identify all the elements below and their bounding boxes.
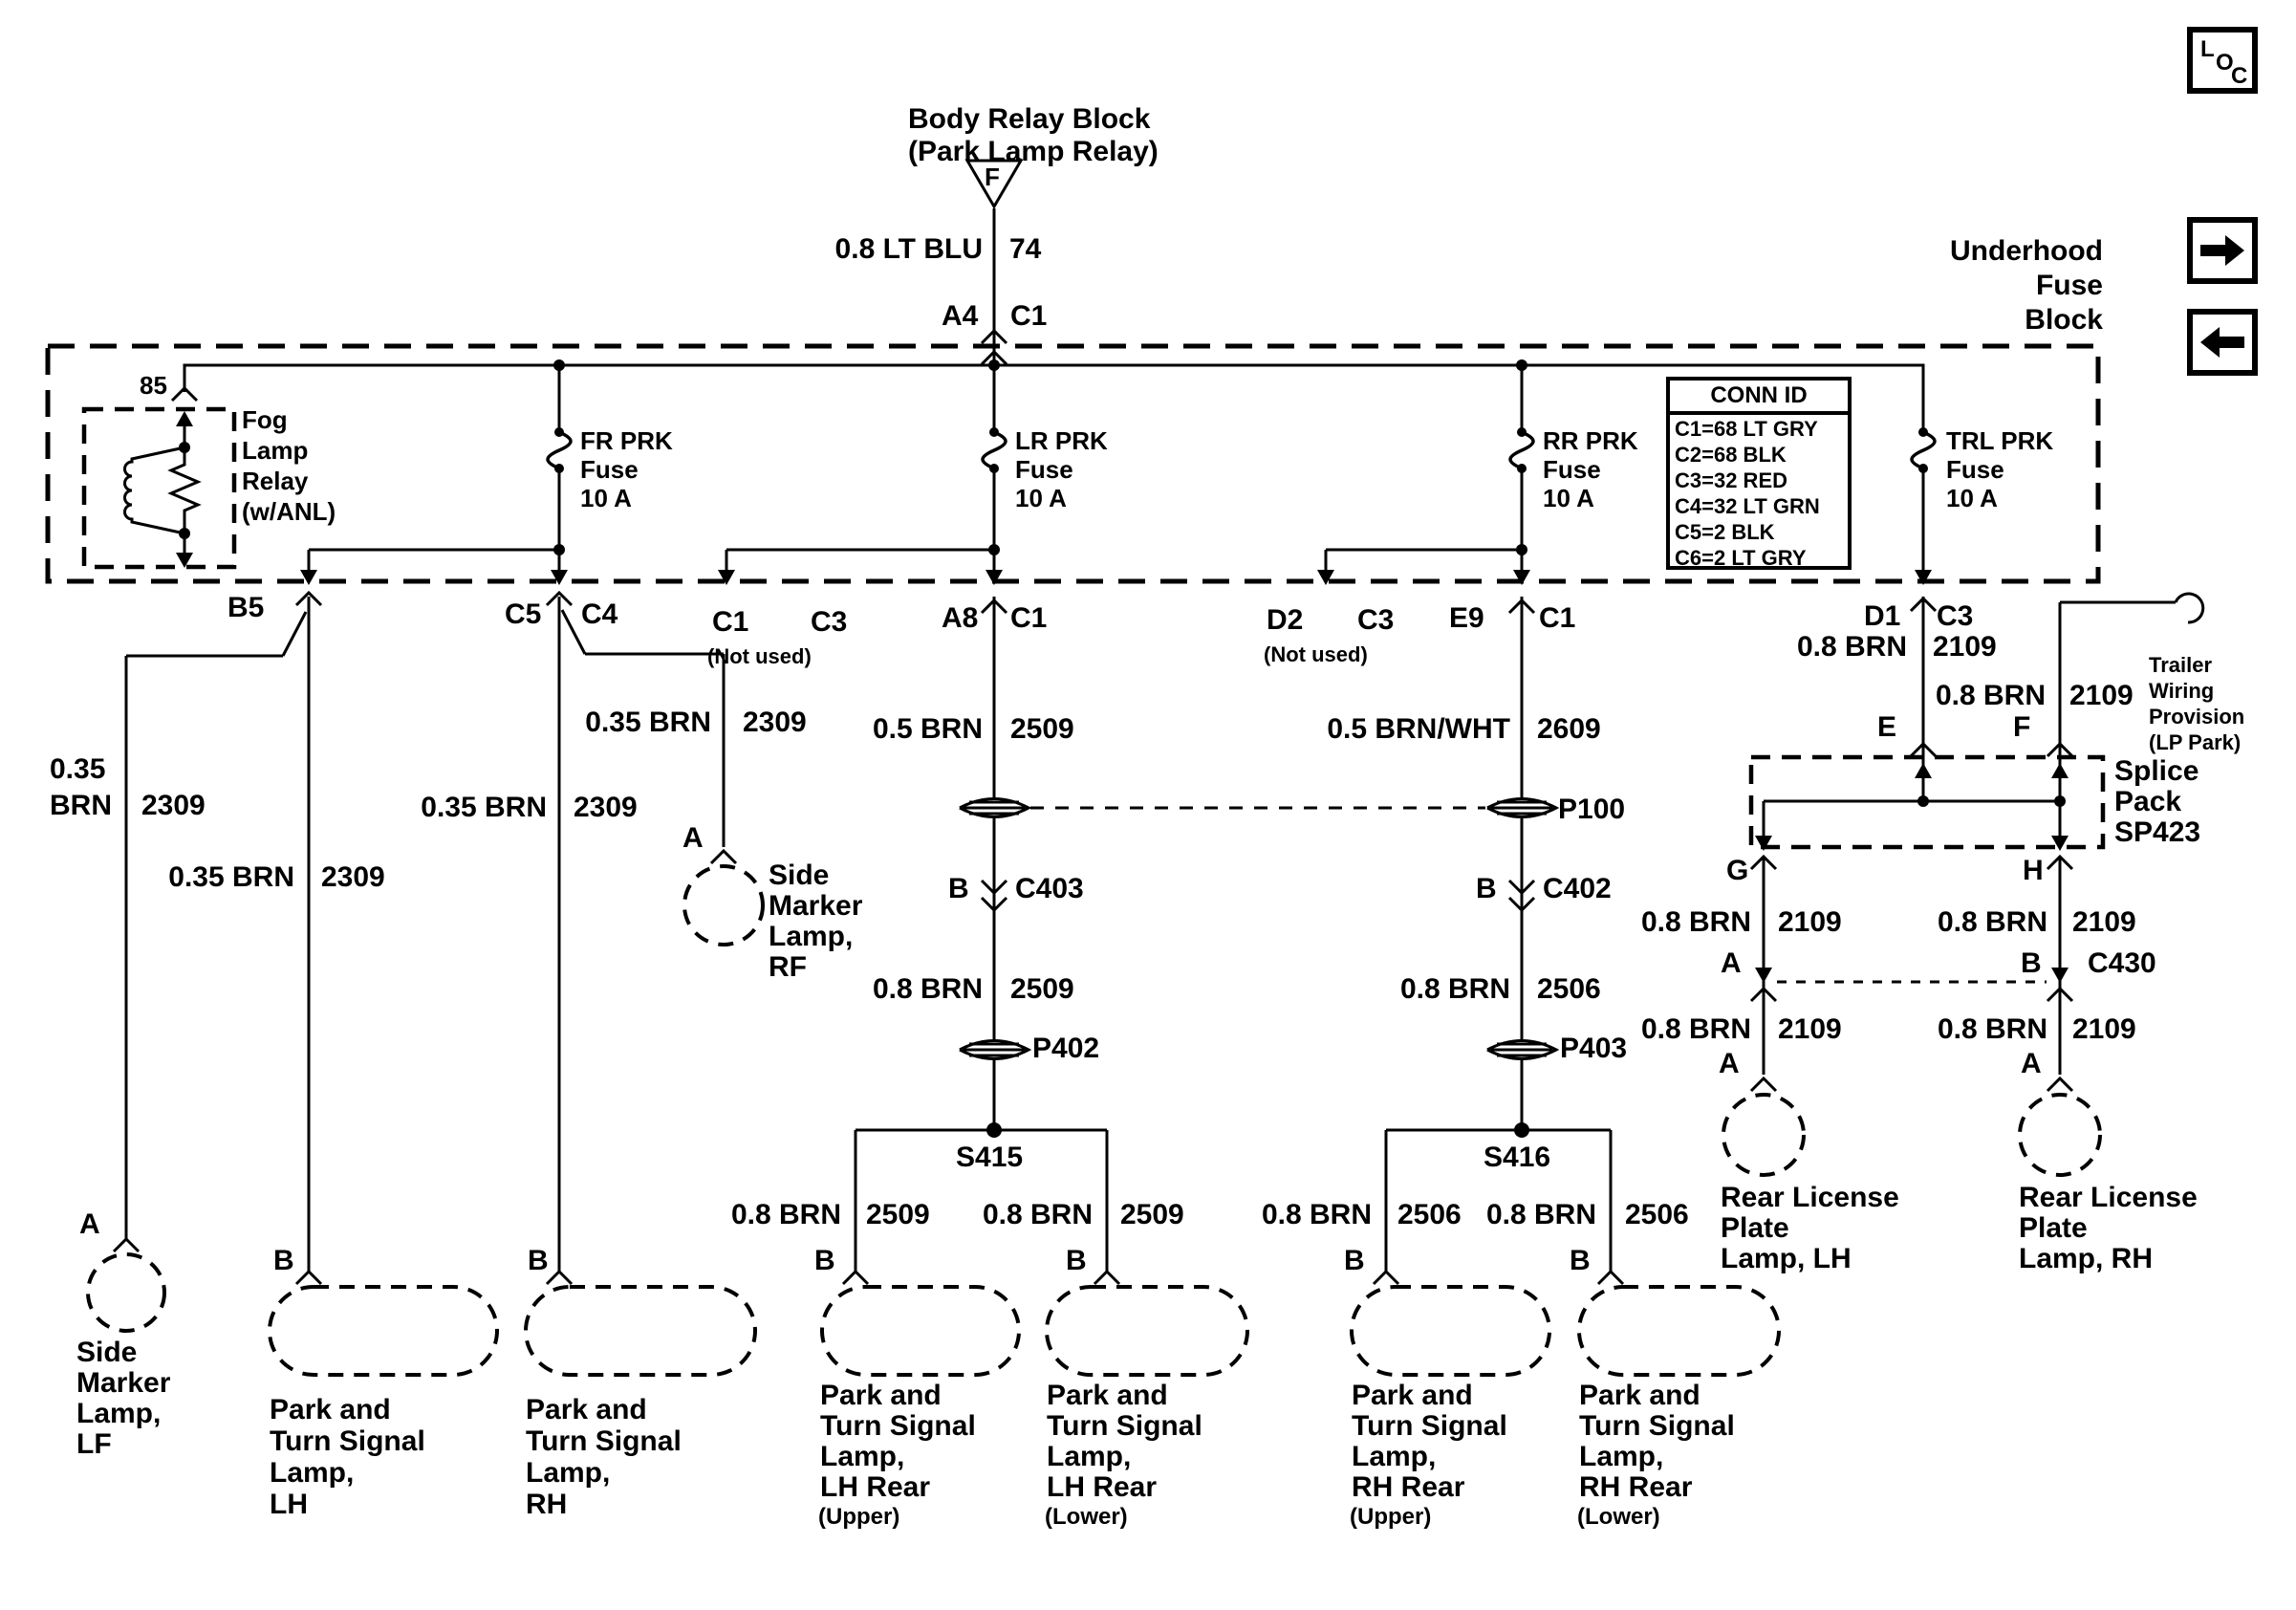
- splice-s416-label: S416: [1484, 1143, 1550, 1172]
- fuse-lr-word: Fuse: [1015, 457, 1073, 482]
- body-relay-block-label-1: Body Relay Block: [908, 105, 1150, 134]
- pin-d1: D1: [1864, 602, 1900, 631]
- fuse-rr-amps: 10 A: [1543, 486, 1594, 511]
- pin-c430-b: B: [2021, 949, 2042, 978]
- pin-nu1-b: C3: [811, 608, 847, 637]
- wire-h1-color: 0.8 BRN: [1938, 908, 2047, 937]
- lamp-park-turn-rh-rear-upper: [1352, 1287, 1549, 1375]
- pt-rhr-u-name-1: Park and: [1352, 1382, 1473, 1410]
- feed-pin: A4: [942, 302, 978, 331]
- pt-lh-name-4: LH: [270, 1490, 308, 1519]
- pin-nu2-a: D2: [1267, 606, 1303, 635]
- wire-h1-circuit: 2109: [2072, 908, 2136, 937]
- fog-lamp-relay-symbol: [125, 447, 198, 533]
- wire-rf-circuit: 2309: [743, 708, 807, 737]
- wire-lf-size: 0.35: [50, 755, 105, 784]
- wire-lf-color: BRN: [50, 792, 112, 820]
- pt-lh-name-2: Turn Signal: [270, 1427, 425, 1456]
- triangle-letter: F: [985, 164, 1000, 189]
- wire-rh-front-color: 0.35 BRN: [421, 794, 547, 822]
- wire-f-circuit: 2109: [2069, 682, 2134, 710]
- fuse-lr-amps: 10 A: [1015, 486, 1067, 511]
- pt-rh-name-3: Lamp,: [526, 1459, 610, 1488]
- trailer-label-3: Provision: [2149, 707, 2244, 728]
- relay-pin-85: 85: [140, 373, 167, 398]
- pt-lhr-u-note: (Upper): [818, 1506, 899, 1529]
- trailer-label-2: Wiring: [2149, 681, 2214, 702]
- loc-letter-l: L: [2200, 36, 2215, 63]
- pin-c402: B: [1476, 875, 1497, 903]
- feed-wire-color: 0.8 LT BLU: [835, 235, 983, 264]
- pt-rhr-l-name-2: Turn Signal: [1579, 1412, 1735, 1441]
- lamp-outlines: [88, 866, 2100, 1375]
- pin-h: H: [2023, 857, 2044, 885]
- rlp-lh-name-1: Rear License: [1721, 1184, 1899, 1212]
- fuse-fr-word: Fuse: [580, 457, 639, 482]
- conn-c403: C403: [1015, 875, 1084, 903]
- wire-lr-mid-circuit: 2509: [1010, 975, 1074, 1004]
- fuse-block-title-2: Fuse: [2036, 272, 2103, 300]
- pt-rhr-l-name-1: Park and: [1579, 1382, 1700, 1410]
- conn-id-title: CONN ID: [1668, 384, 1850, 407]
- conn-id-row-6: C6=2 LT GRY: [1675, 548, 1807, 569]
- pin-e9: E9: [1449, 604, 1484, 633]
- lamp-side-marker-lf: [88, 1254, 164, 1331]
- wire-lr-low-circuit: 2509: [1120, 1201, 1184, 1229]
- pt-rh-name-2: Turn Signal: [526, 1427, 682, 1456]
- splice-s415-label: S415: [956, 1143, 1023, 1172]
- lamp-park-turn-lh: [270, 1287, 497, 1375]
- fog-relay-name-2: Lamp: [242, 438, 308, 463]
- left-arrow-icon: [2193, 315, 2252, 370]
- wire-g1-circuit: 2109: [1778, 908, 1842, 937]
- sm-rf-name-4: RF: [769, 953, 807, 982]
- pin-e9-conn: C1: [1539, 604, 1575, 633]
- wire-f-color: 0.8 BRN: [1936, 682, 2046, 710]
- pt-lhr-l-name-3: Lamp,: [1047, 1443, 1131, 1471]
- loc-letter-c: C: [2231, 63, 2247, 90]
- trailer-label-4: (LP Park): [2149, 732, 2241, 753]
- pt-lh-name-1: Park and: [270, 1396, 391, 1425]
- pin-nu2-note: (Not used): [1264, 644, 1368, 665]
- grommet-p403: [1487, 1041, 1556, 1059]
- fuse-trl-word: Fuse: [1946, 457, 2004, 482]
- loc-button[interactable]: L O C: [2187, 27, 2258, 94]
- pin-d1-conn: C3: [1937, 602, 1973, 631]
- wire-rr-low-color: 0.8 BRN: [1486, 1201, 1596, 1229]
- rlp-rh-name-1: Rear License: [2019, 1184, 2198, 1212]
- next-page-button[interactable]: [2187, 217, 2258, 284]
- lamp-park-turn-rh: [526, 1287, 755, 1375]
- pin-pt-rhr-u: B: [1344, 1247, 1365, 1275]
- wire-h2-color: 0.8 BRN: [1938, 1015, 2047, 1044]
- pin-sm-rf: A: [682, 824, 704, 853]
- lamp-rear-license-lh: [1723, 1095, 1804, 1175]
- fuse-lr-name: LR PRK: [1015, 428, 1108, 453]
- sm-lf-name-4: LF: [76, 1430, 112, 1459]
- rlp-lh-name-3: Lamp, LH: [1721, 1245, 1852, 1273]
- fuse-rr-name: RR PRK: [1543, 428, 1638, 453]
- lamp-park-turn-lh-rear-upper: [822, 1287, 1019, 1375]
- splice-pack-name-2: Pack: [2114, 788, 2181, 816]
- pin-nu2-b: C3: [1357, 606, 1394, 635]
- pt-lhr-u-name-3: Lamp,: [820, 1443, 904, 1471]
- fuse-fr-amps: 10 A: [580, 486, 632, 511]
- grommet-p100: [1487, 799, 1556, 817]
- pin-f: F: [2013, 713, 2030, 742]
- rlp-lh-name-2: Plate: [1721, 1214, 1789, 1243]
- wire-rr-feed-circuit: 2609: [1537, 715, 1601, 744]
- wire-lr-mid-color: 0.8 BRN: [873, 975, 983, 1004]
- pin-pt-rhr-l: B: [1570, 1247, 1591, 1275]
- wire-lr-low-color: 0.8 BRN: [983, 1201, 1093, 1229]
- wire-lr-up-color: 0.8 BRN: [731, 1201, 841, 1229]
- pt-rhr-u-note: (Upper): [1350, 1506, 1431, 1529]
- feed-wire-circuit: 74: [1009, 235, 1041, 264]
- wire-rr-mid-color: 0.8 BRN: [1400, 975, 1510, 1004]
- conn-c402: C402: [1543, 875, 1612, 903]
- wire-trl-color: 0.8 BRN: [1797, 633, 1907, 662]
- pt-rhr-u-name-2: Turn Signal: [1352, 1412, 1507, 1441]
- sm-lf-name-3: Lamp,: [76, 1400, 161, 1428]
- pt-lhr-l-name-2: Turn Signal: [1047, 1412, 1202, 1441]
- wire-rr-mid-circuit: 2506: [1537, 975, 1601, 1004]
- pt-lhr-l-name-4: LH Rear: [1047, 1473, 1157, 1502]
- grommet-p100-label: P100: [1558, 795, 1625, 824]
- lamp-park-turn-rh-rear-lower: [1579, 1287, 1779, 1375]
- pin-c5: C5: [505, 600, 541, 629]
- wire-g2-color: 0.8 BRN: [1641, 1015, 1751, 1044]
- pin-rlp-rh: A: [2021, 1050, 2042, 1078]
- wire-lh-front-circuit: 2309: [321, 863, 385, 892]
- wire-lh-front-color: 0.35 BRN: [168, 863, 294, 892]
- fuse-block-title-1: Underhood: [1950, 237, 2103, 266]
- pt-lhr-l-name-1: Park and: [1047, 1382, 1168, 1410]
- fuse-fr-name: FR PRK: [580, 428, 673, 453]
- wire-lf-circuit: 2309: [141, 792, 206, 820]
- grommet-p403-label: P403: [1560, 1034, 1627, 1063]
- feed-conn: C1: [1010, 302, 1047, 331]
- pin-pt-lh: B: [273, 1247, 294, 1275]
- pt-lhr-u-name-4: LH Rear: [820, 1473, 930, 1502]
- fog-relay-name-1: Fog: [242, 407, 288, 432]
- grommet-p402: [960, 1041, 1029, 1059]
- conn-id-row-5: C5=2 BLK: [1675, 522, 1775, 543]
- pt-lhr-u-name-2: Turn Signal: [820, 1412, 976, 1441]
- sm-rf-name-1: Side: [769, 861, 829, 890]
- pt-rhr-l-name-3: Lamp,: [1579, 1443, 1663, 1471]
- conn-c430: C430: [2088, 949, 2156, 978]
- sm-rf-name-2: Marker: [769, 892, 862, 921]
- pt-rhr-l-note: (Lower): [1577, 1506, 1660, 1529]
- pt-lhr-l-note: (Lower): [1045, 1506, 1128, 1529]
- pin-b5: B5: [227, 594, 264, 622]
- body-relay-block-label-2: (Park Lamp Relay): [908, 138, 1159, 166]
- wire-rf-color: 0.35 BRN: [585, 708, 711, 737]
- grommet-symbols: [960, 799, 1556, 1059]
- wire-rr-feed-color: 0.5 BRN/WHT: [1327, 715, 1510, 744]
- pin-pt-lhr-l: B: [1066, 1247, 1087, 1275]
- splice-pack-name-3: SP423: [2114, 818, 2200, 847]
- pin-g: G: [1726, 857, 1748, 885]
- pin-a8: A8: [942, 604, 978, 633]
- wire-lr-feed-color: 0.5 BRN: [873, 715, 983, 744]
- splice-pack-name-1: Splice: [2114, 757, 2199, 786]
- wire-rr-up-circuit: 2506: [1397, 1201, 1462, 1229]
- fuse-trl-name: TRL PRK: [1946, 428, 2053, 453]
- wire-lr-up-circuit: 2509: [866, 1201, 930, 1229]
- pin-e: E: [1877, 713, 1896, 742]
- pt-rh-name-1: Park and: [526, 1396, 647, 1425]
- pin-nu1-note: (Not used): [707, 646, 812, 667]
- pt-lh-name-3: Lamp,: [270, 1459, 354, 1488]
- pt-rhr-u-name-4: RH Rear: [1352, 1473, 1464, 1502]
- fog-relay-name-4: (w/ANL): [242, 499, 336, 524]
- wiring-diagram-page: L O C Body Relay Block (Park Lamp Relay)…: [0, 0, 2296, 1610]
- wire-g2-circuit: 2109: [1778, 1015, 1842, 1044]
- pin-c4: C4: [581, 600, 617, 629]
- pin-pt-lhr-u: B: [814, 1247, 835, 1275]
- wire-g1-color: 0.8 BRN: [1641, 908, 1751, 937]
- wire-lr-feed-circuit: 2509: [1010, 715, 1074, 744]
- pin-sm-lf: A: [79, 1210, 100, 1239]
- grommet-p402-label: P402: [1032, 1034, 1099, 1063]
- wire-h2-circuit: 2109: [2072, 1015, 2136, 1044]
- wire-trl-circuit: 2109: [1933, 633, 1997, 662]
- fog-lamp-relay-box: [84, 409, 234, 567]
- conn-id-row-4: C4=32 LT GRN: [1675, 496, 1820, 517]
- pin-a8-conn: C1: [1010, 604, 1047, 633]
- grommet-lr-upper: [960, 799, 1029, 817]
- sm-lf-name-1: Side: [76, 1338, 137, 1367]
- fog-relay-name-3: Relay: [242, 468, 308, 493]
- sm-rf-name-3: Lamp,: [769, 923, 853, 951]
- pin-pt-rh: B: [528, 1247, 549, 1275]
- trailer-label-1: Trailer: [2149, 655, 2212, 676]
- lamp-rear-license-rh: [2020, 1095, 2100, 1175]
- rlp-rh-name-3: Lamp, RH: [2019, 1245, 2153, 1273]
- pin-nu1-a: C1: [712, 608, 748, 637]
- conn-id-row-1: C1=68 LT GRY: [1675, 419, 1818, 440]
- pin-c403: B: [948, 875, 969, 903]
- conn-id-row-3: C3=32 RED: [1675, 470, 1787, 491]
- fuse-block-title-3: Block: [2025, 306, 2103, 335]
- lamp-park-turn-lh-rear-lower: [1047, 1287, 1247, 1375]
- pt-rh-name-4: RH: [526, 1490, 567, 1519]
- conn-id-row-2: C2=68 BLK: [1675, 445, 1787, 466]
- wire-rr-low-circuit: 2506: [1625, 1201, 1689, 1229]
- sm-lf-name-2: Marker: [76, 1369, 170, 1398]
- wire-rr-up-color: 0.8 BRN: [1262, 1201, 1372, 1229]
- pt-rhr-l-name-4: RH Rear: [1579, 1473, 1692, 1502]
- rlp-rh-name-2: Plate: [2019, 1214, 2088, 1243]
- pt-rhr-u-name-3: Lamp,: [1352, 1443, 1436, 1471]
- pin-c430-a: A: [1721, 949, 1742, 978]
- prev-page-button[interactable]: [2187, 309, 2258, 376]
- wire-rh-front-circuit: 2309: [574, 794, 638, 822]
- pin-rlp-lh: A: [1719, 1050, 1740, 1078]
- fuse-rr-word: Fuse: [1543, 457, 1601, 482]
- fuse-trl-amps: 10 A: [1946, 486, 1998, 511]
- right-arrow-icon: [2193, 223, 2252, 278]
- lamp-side-marker-rf: [684, 866, 763, 945]
- pt-lhr-u-name-1: Park and: [820, 1382, 942, 1410]
